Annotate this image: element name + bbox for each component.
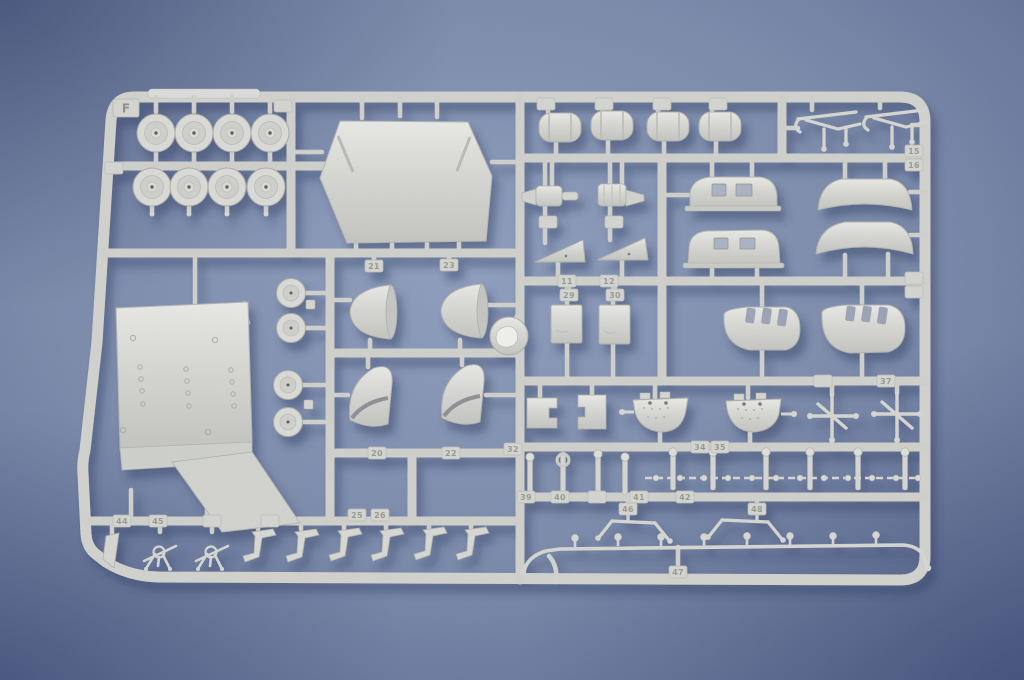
wheel-part bbox=[175, 114, 213, 152]
part-number-tag: 39 bbox=[517, 491, 535, 503]
svg-text:15: 15 bbox=[908, 147, 920, 156]
spinner-disc-part bbox=[490, 317, 528, 355]
part-number-tag: 37 bbox=[877, 375, 895, 387]
wheel-part bbox=[251, 114, 289, 152]
svg-text:39: 39 bbox=[520, 493, 532, 502]
part-number-tag: 46 bbox=[619, 503, 637, 515]
sprue-photo: F bbox=[0, 0, 1024, 680]
wheel-part bbox=[247, 168, 285, 206]
wheel-part bbox=[213, 114, 251, 152]
wheel-part bbox=[208, 168, 246, 206]
wheel-part bbox=[274, 408, 303, 437]
part-number-tag: 26 bbox=[371, 509, 389, 521]
part-number-tag: 20 bbox=[368, 447, 386, 459]
svg-text:32: 32 bbox=[507, 445, 519, 454]
svg-text:47: 47 bbox=[672, 568, 684, 577]
part-number-tag: 30 bbox=[606, 289, 624, 301]
svg-text:16: 16 bbox=[908, 161, 920, 170]
svg-text:12: 12 bbox=[603, 277, 615, 286]
part-number-tag: 32 bbox=[504, 443, 522, 455]
svg-text:44: 44 bbox=[116, 517, 128, 526]
part-number-tag: 15 bbox=[905, 145, 923, 157]
part-number-tag: 16 bbox=[905, 159, 923, 171]
part-number-tag: 11 bbox=[558, 275, 576, 287]
svg-text:20: 20 bbox=[371, 449, 383, 458]
runner-letter: F bbox=[122, 102, 130, 116]
svg-text:26: 26 bbox=[374, 511, 386, 520]
svg-text:23: 23 bbox=[443, 261, 455, 270]
svg-text:11: 11 bbox=[561, 277, 573, 286]
runner-letter-tag: F bbox=[113, 99, 139, 117]
svg-text:40: 40 bbox=[554, 493, 566, 502]
svg-text:25: 25 bbox=[351, 511, 363, 520]
part-number-tag: 41 bbox=[630, 491, 648, 503]
wheel-part bbox=[274, 371, 303, 400]
part-number-tag: 29 bbox=[560, 289, 578, 301]
svg-text:46: 46 bbox=[622, 505, 634, 514]
hood-panel-part bbox=[320, 121, 492, 243]
part-number-tag: 34 bbox=[691, 441, 709, 453]
part-number-tag: 44 bbox=[113, 515, 131, 527]
part-number-tag: 23 bbox=[440, 259, 458, 271]
svg-text:30: 30 bbox=[609, 291, 621, 300]
part-number-tag: 22 bbox=[442, 447, 460, 459]
part-number-tag: 35 bbox=[711, 441, 729, 453]
svg-text:41: 41 bbox=[633, 493, 645, 502]
part-number-tag: 48 bbox=[748, 503, 766, 515]
svg-text:42: 42 bbox=[679, 493, 691, 502]
svg-text:21: 21 bbox=[368, 262, 380, 271]
wheel-part bbox=[137, 114, 175, 152]
svg-text:29: 29 bbox=[563, 291, 575, 300]
svg-text:34: 34 bbox=[694, 443, 706, 452]
wheel-part bbox=[133, 168, 171, 206]
molded-text-ridge bbox=[148, 89, 260, 98]
part-number-tag: 47 bbox=[669, 566, 687, 578]
part-number-tag: 21 bbox=[365, 260, 383, 272]
svg-text:22: 22 bbox=[445, 449, 457, 458]
wheel-part bbox=[277, 279, 306, 308]
svg-text:48: 48 bbox=[751, 505, 763, 514]
part-number-tag: 45 bbox=[149, 515, 167, 527]
part-number-tag: 40 bbox=[551, 491, 569, 503]
wheel-part bbox=[277, 314, 306, 343]
svg-text:37: 37 bbox=[880, 377, 892, 386]
part-number-tag: 12 bbox=[600, 275, 618, 287]
part-number-tag: 25 bbox=[348, 509, 366, 521]
svg-text:35: 35 bbox=[714, 443, 726, 452]
wheel-part bbox=[170, 168, 208, 206]
svg-text:45: 45 bbox=[152, 517, 164, 526]
part-number-tag: 42 bbox=[676, 491, 694, 503]
